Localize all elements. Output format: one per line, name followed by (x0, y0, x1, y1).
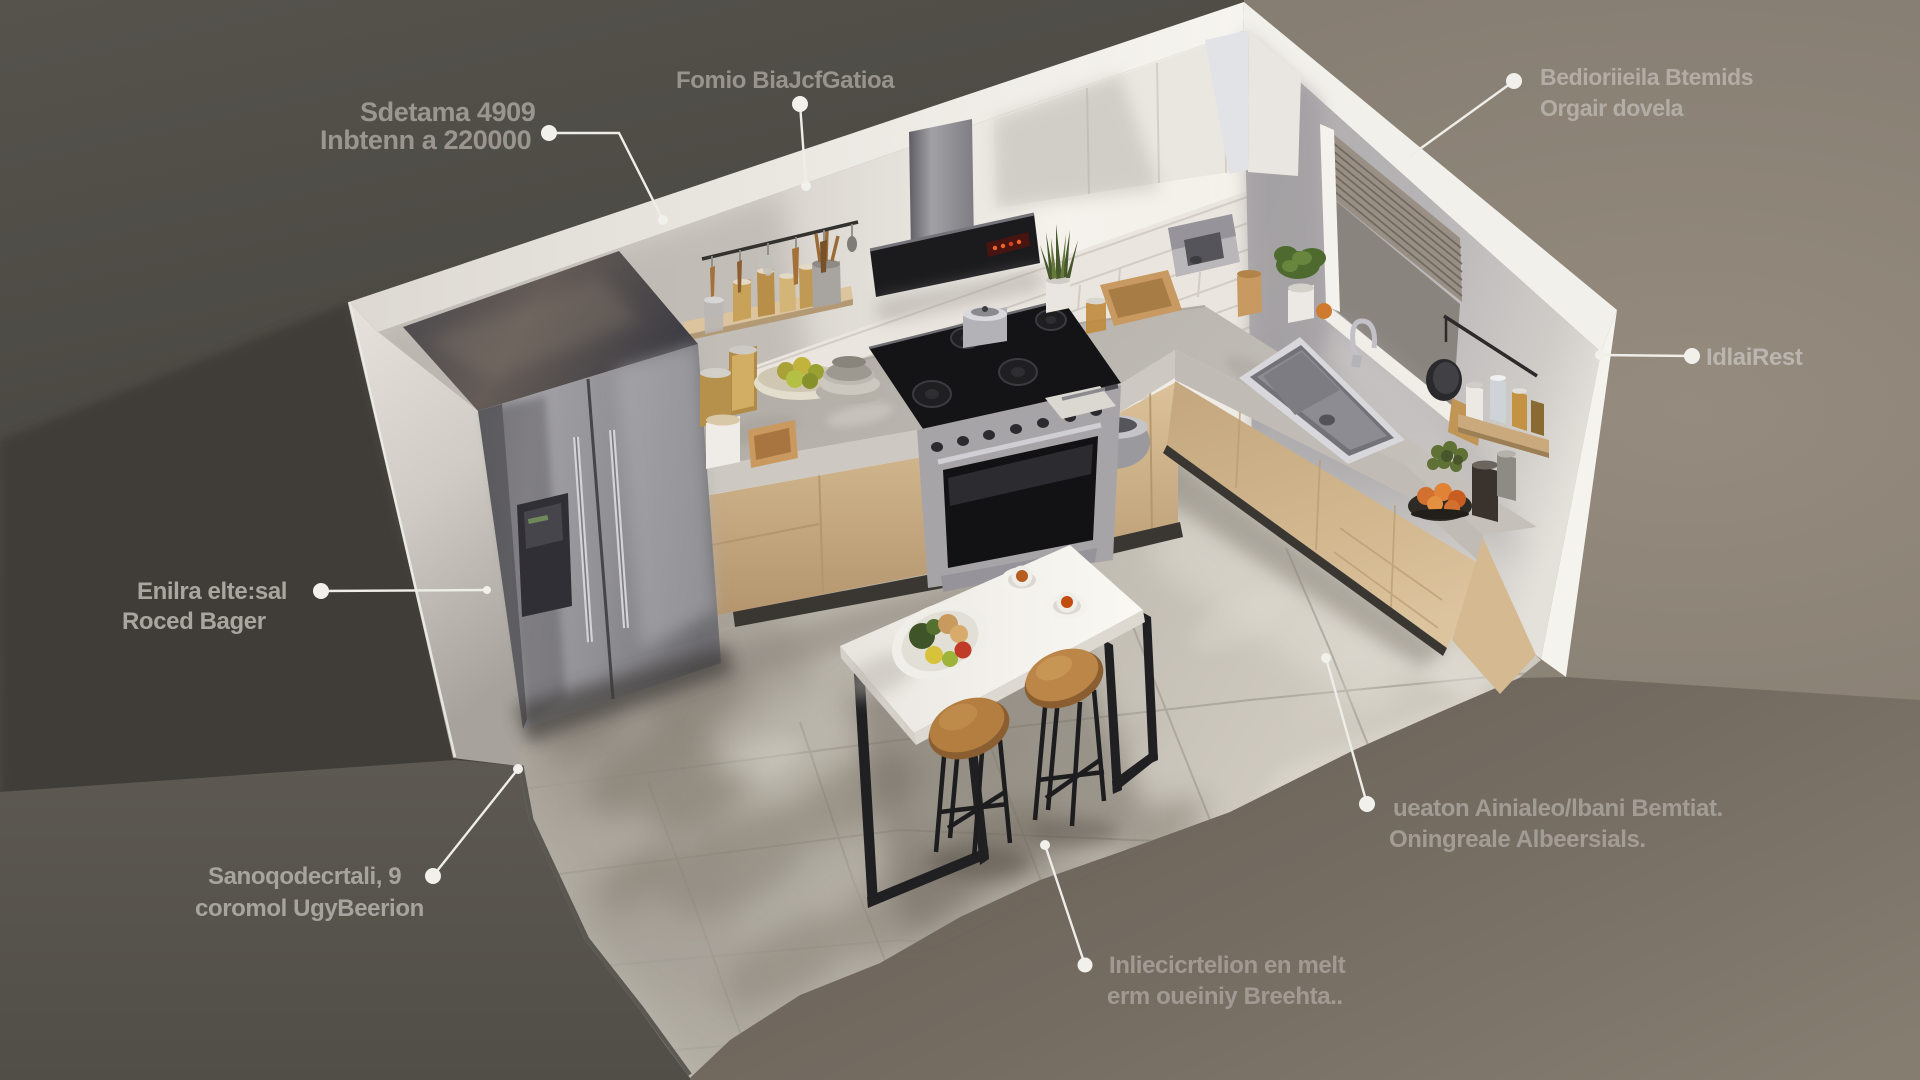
svg-text:Orgair dovela: Orgair dovela (1540, 95, 1684, 121)
svg-text:Sanoqodecrtali, 9: Sanoqodecrtali, 9 (208, 863, 401, 890)
svg-text:Fomio BiaJcfGatioa: Fomio BiaJcfGatioa (676, 67, 895, 94)
svg-text:Roced Bager: Roced Bager (122, 608, 266, 635)
svg-text:IdlaiRest: IdlaiRest (1706, 344, 1803, 371)
svg-text:Inliecicrtelion en melt: Inliecicrtelion en melt (1109, 952, 1346, 979)
svg-text:coromol UgyBeerion: coromol UgyBeerion (195, 895, 424, 922)
svg-text:Sdetama 4909: Sdetama 4909 (360, 97, 536, 127)
svg-text:Oningreale Albeersials.: Oningreale Albeersials. (1389, 826, 1646, 853)
svg-text:Enilra elte:sal: Enilra elte:sal (137, 578, 287, 605)
svg-text:erm oueiniy Breehta..: erm oueiniy Breehta.. (1107, 983, 1343, 1010)
svg-text:ueaton Ainialeo/lbani Bemtiat.: ueaton Ainialeo/lbani Bemtiat. (1393, 795, 1723, 822)
svg-text:Inbtenn a 220000: Inbtenn a 220000 (320, 125, 531, 155)
svg-text:Bedioriieila Btemids: Bedioriieila Btemids (1540, 64, 1753, 90)
